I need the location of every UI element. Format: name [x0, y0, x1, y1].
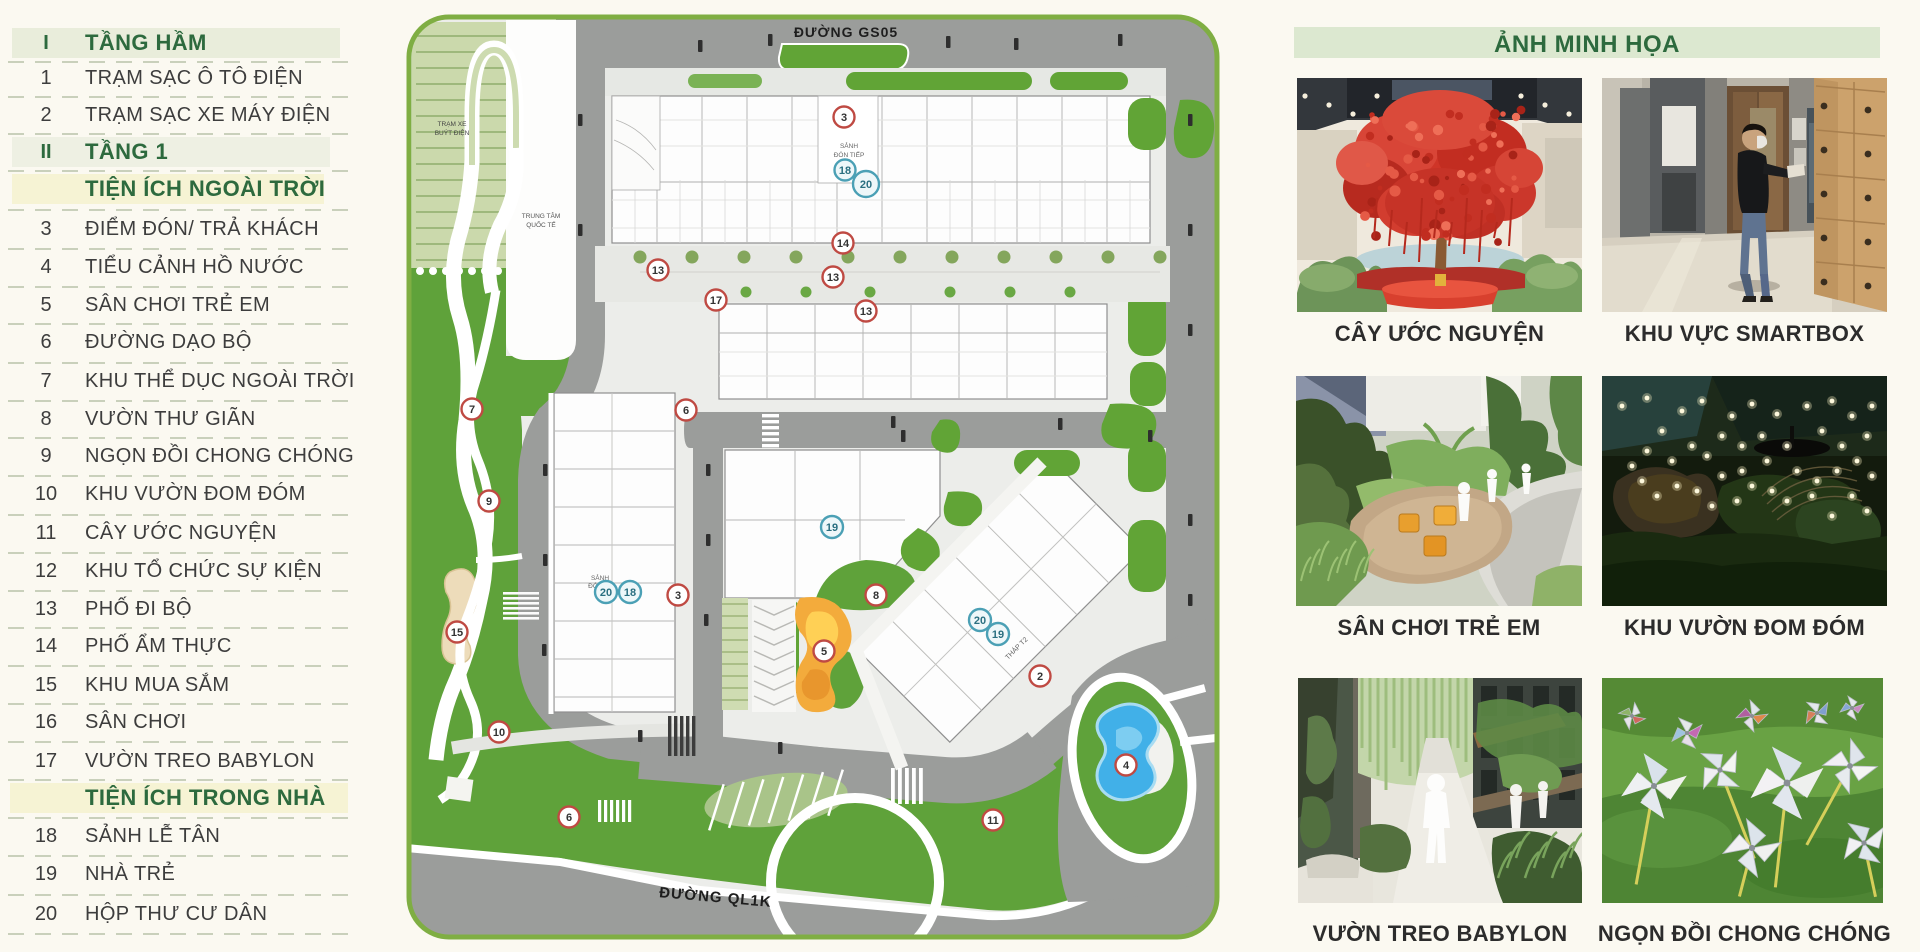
svg-text:15: 15: [451, 627, 463, 639]
svg-text:6: 6: [566, 812, 572, 824]
svg-text:13: 13: [652, 265, 664, 277]
svg-text:TRUNG TÂM: TRUNG TÂM: [522, 211, 561, 220]
svg-text:18: 18: [839, 165, 851, 177]
svg-text:19: 19: [992, 629, 1004, 641]
svg-text:17: 17: [710, 295, 722, 307]
svg-text:8: 8: [873, 590, 879, 602]
svg-text:BUÝT ĐIỆN: BUÝT ĐIỆN: [435, 128, 470, 137]
svg-text:5: 5: [821, 646, 827, 658]
svg-text:6: 6: [683, 405, 689, 417]
svg-text:7: 7: [469, 404, 475, 416]
svg-text:20: 20: [600, 587, 612, 599]
svg-text:11: 11: [987, 815, 999, 827]
svg-text:TRẠM XE: TRẠM XE: [438, 121, 468, 128]
svg-text:ĐƯỜNG GS05: ĐƯỜNG GS05: [794, 23, 898, 40]
svg-text:13: 13: [860, 306, 872, 318]
svg-text:19: 19: [826, 522, 838, 534]
svg-text:2: 2: [1037, 671, 1043, 683]
svg-text:3: 3: [675, 590, 681, 602]
svg-text:20: 20: [974, 615, 986, 627]
svg-text:3: 3: [841, 112, 847, 124]
svg-text:10: 10: [493, 727, 505, 739]
svg-text:13: 13: [827, 272, 839, 284]
svg-text:4: 4: [1123, 760, 1130, 772]
svg-text:SẢNH: SẢNH: [840, 141, 858, 150]
svg-text:14: 14: [837, 238, 850, 250]
svg-text:9: 9: [486, 496, 492, 508]
svg-text:18: 18: [624, 587, 636, 599]
svg-text:20: 20: [860, 179, 872, 191]
